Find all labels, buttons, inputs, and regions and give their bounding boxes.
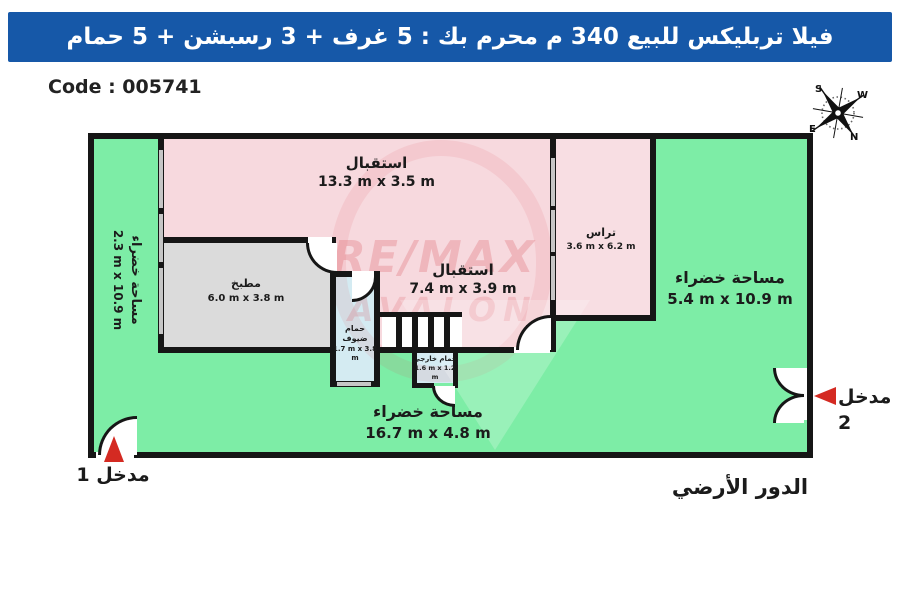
- room-dims: 3.6 m x 6.2 m: [556, 241, 646, 253]
- listing-code: Code : 005741: [48, 76, 202, 98]
- green-left-label: مساحة خضراء 2.3 m x 10.9 m: [104, 220, 144, 340]
- room-name: مطبخ: [176, 277, 316, 292]
- window-terrace-3: [551, 256, 555, 300]
- guest-bath-label: حمام ضيوف 1.7 m x 3.8 m: [331, 324, 379, 363]
- area-name: مساحة خضراء: [126, 220, 144, 340]
- stair-tread-bar: [444, 315, 450, 347]
- area-name: مساحة خضراء: [348, 400, 508, 423]
- window-guestbath: [337, 382, 371, 386]
- room-name: حمام ضيوف: [331, 324, 379, 345]
- wall-terrace-bottom: [550, 315, 656, 321]
- kitchen-label: مطبخ 6.0 m x 3.8 m: [176, 277, 316, 305]
- entrance1-arrow-icon: [104, 436, 124, 462]
- window-terrace-1: [551, 158, 555, 206]
- room-dims: 7.4 m x 3.9 m: [383, 280, 543, 299]
- stair-tread-bar: [428, 315, 434, 347]
- stair-tread-bar: [396, 315, 402, 347]
- room-dims: 1.6 m x 1.2 m: [411, 364, 459, 381]
- area-dims: 16.7 m x 4.8 m: [348, 423, 508, 445]
- wall-kitchen-bottom: [158, 347, 334, 353]
- floorplan-page: فيلا تربليكس للبيع 340 م محرم بك : 5 غرف…: [0, 0, 900, 599]
- area-dims: 5.4 m x 10.9 m: [655, 289, 805, 311]
- area-name: مساحة خضراء: [655, 266, 805, 289]
- green-bottom-label: مساحة خضراء 16.7 m x 4.8 m: [348, 400, 508, 445]
- room-dims: 1.7 m x 3.8 m: [331, 345, 379, 363]
- compass-icon: S W N E: [798, 76, 878, 150]
- reception2-label: استقبال 7.4 m x 3.9 m: [383, 260, 543, 299]
- listing-title: فيلا تربليكس للبيع 340 م محرم بك : 5 غرف…: [66, 24, 833, 50]
- outdoor-bath-label: حمام خارجي 1.6 m x 1.2 m: [411, 355, 459, 381]
- entrance2-arrow-icon: [814, 387, 836, 405]
- reception1-label: استقبال 13.3 m x 3.5 m: [279, 153, 474, 192]
- window-left-2: [159, 214, 163, 262]
- staircase: [382, 317, 462, 347]
- room-dims: 13.3 m x 3.5 m: [279, 173, 474, 192]
- wall-bottom-mid: [380, 347, 514, 353]
- terrace-label: تراس 3.6 m x 6.2 m: [556, 226, 646, 253]
- room-name: حمام خارجي: [411, 355, 459, 364]
- floor-name-label: الدور الأرضي: [655, 473, 825, 501]
- room-name: استقبال: [383, 260, 543, 280]
- listing-title-bar: فيلا تربليكس للبيع 340 م محرم بك : 5 غرف…: [8, 12, 892, 62]
- wall-outdoorbath-bottom: [412, 383, 434, 388]
- compass-n-label: N: [850, 132, 858, 143]
- room-dims: 6.0 m x 3.8 m: [176, 292, 316, 306]
- compass-e-label: E: [809, 124, 816, 135]
- room-name: استقبال: [279, 153, 474, 173]
- wall-reception1-kitchen: [158, 237, 308, 243]
- entrance1-label: مدخل 1: [68, 463, 158, 489]
- green-right-label: مساحة خضراء 5.4 m x 10.9 m: [655, 266, 805, 311]
- room-name: تراس: [556, 226, 646, 241]
- window-terrace-2: [551, 210, 555, 252]
- area-dims: 2.3 m x 10.9 m: [110, 220, 126, 340]
- stair-tread-bar: [412, 315, 418, 347]
- compass-w-label: W: [857, 90, 868, 101]
- entrance2-label: مدخل 2: [838, 385, 898, 436]
- window-left-3: [159, 268, 163, 334]
- window-left-1: [159, 150, 163, 208]
- compass-s-label: S: [815, 84, 822, 95]
